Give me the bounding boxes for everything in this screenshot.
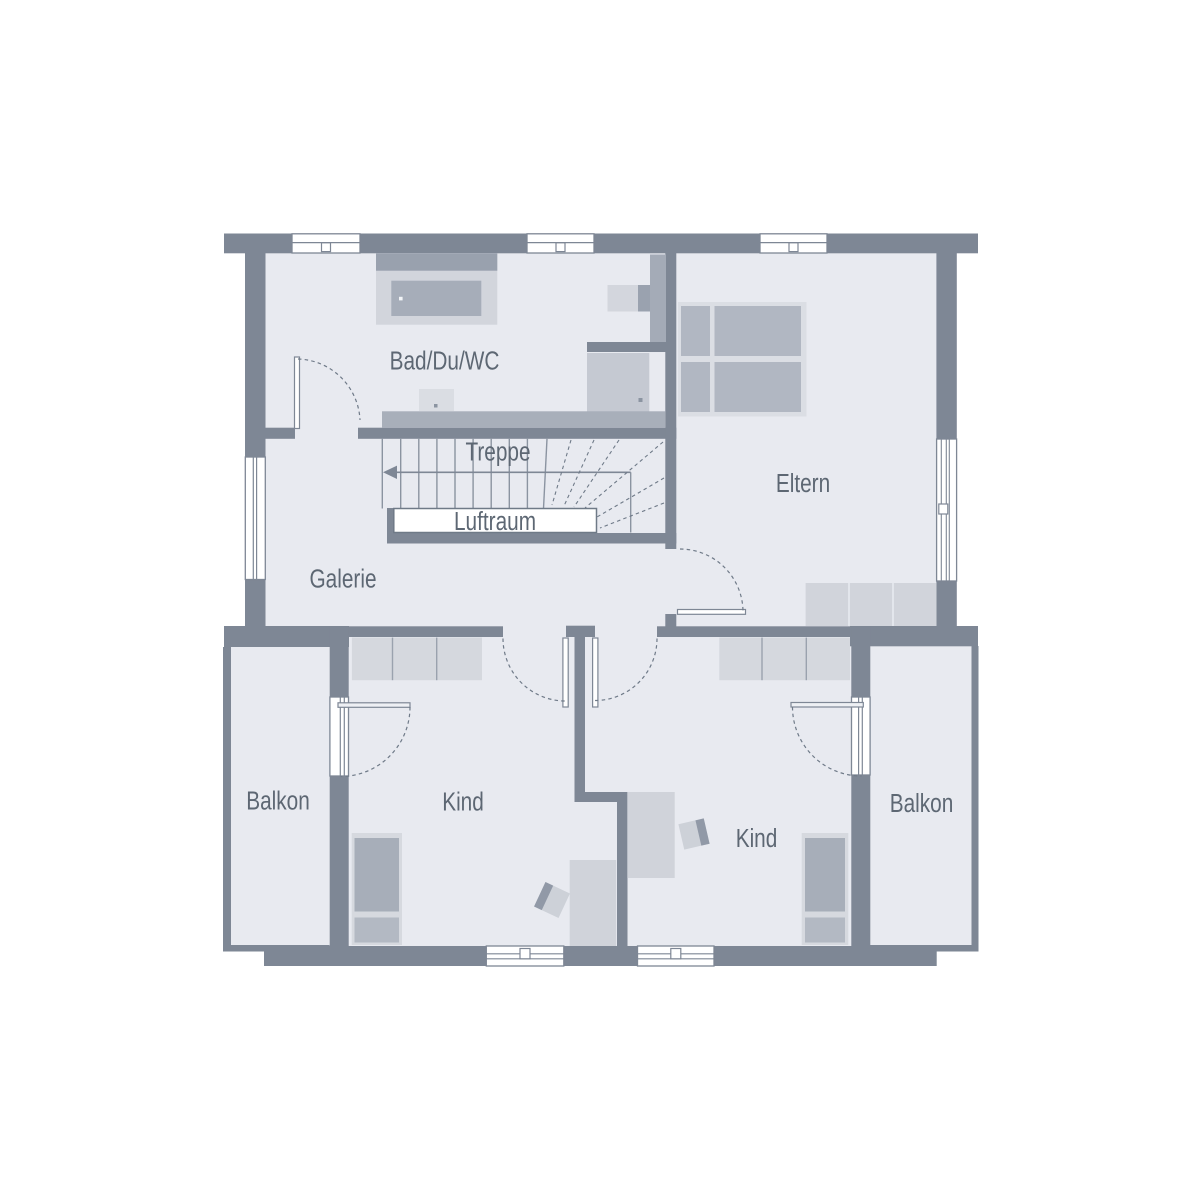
svg-text:Luftraum: Luftraum: [454, 507, 536, 536]
svg-text:Treppe: Treppe: [465, 437, 530, 466]
svg-text:Bad/Du/WC: Bad/Du/WC: [390, 346, 500, 375]
svg-text:Eltern: Eltern: [776, 469, 830, 498]
svg-text:Kind: Kind: [442, 787, 484, 816]
svg-text:Balkon: Balkon: [890, 789, 954, 818]
svg-text:Galerie: Galerie: [309, 564, 376, 593]
svg-text:Balkon: Balkon: [246, 786, 310, 815]
svg-text:Kind: Kind: [736, 824, 778, 853]
